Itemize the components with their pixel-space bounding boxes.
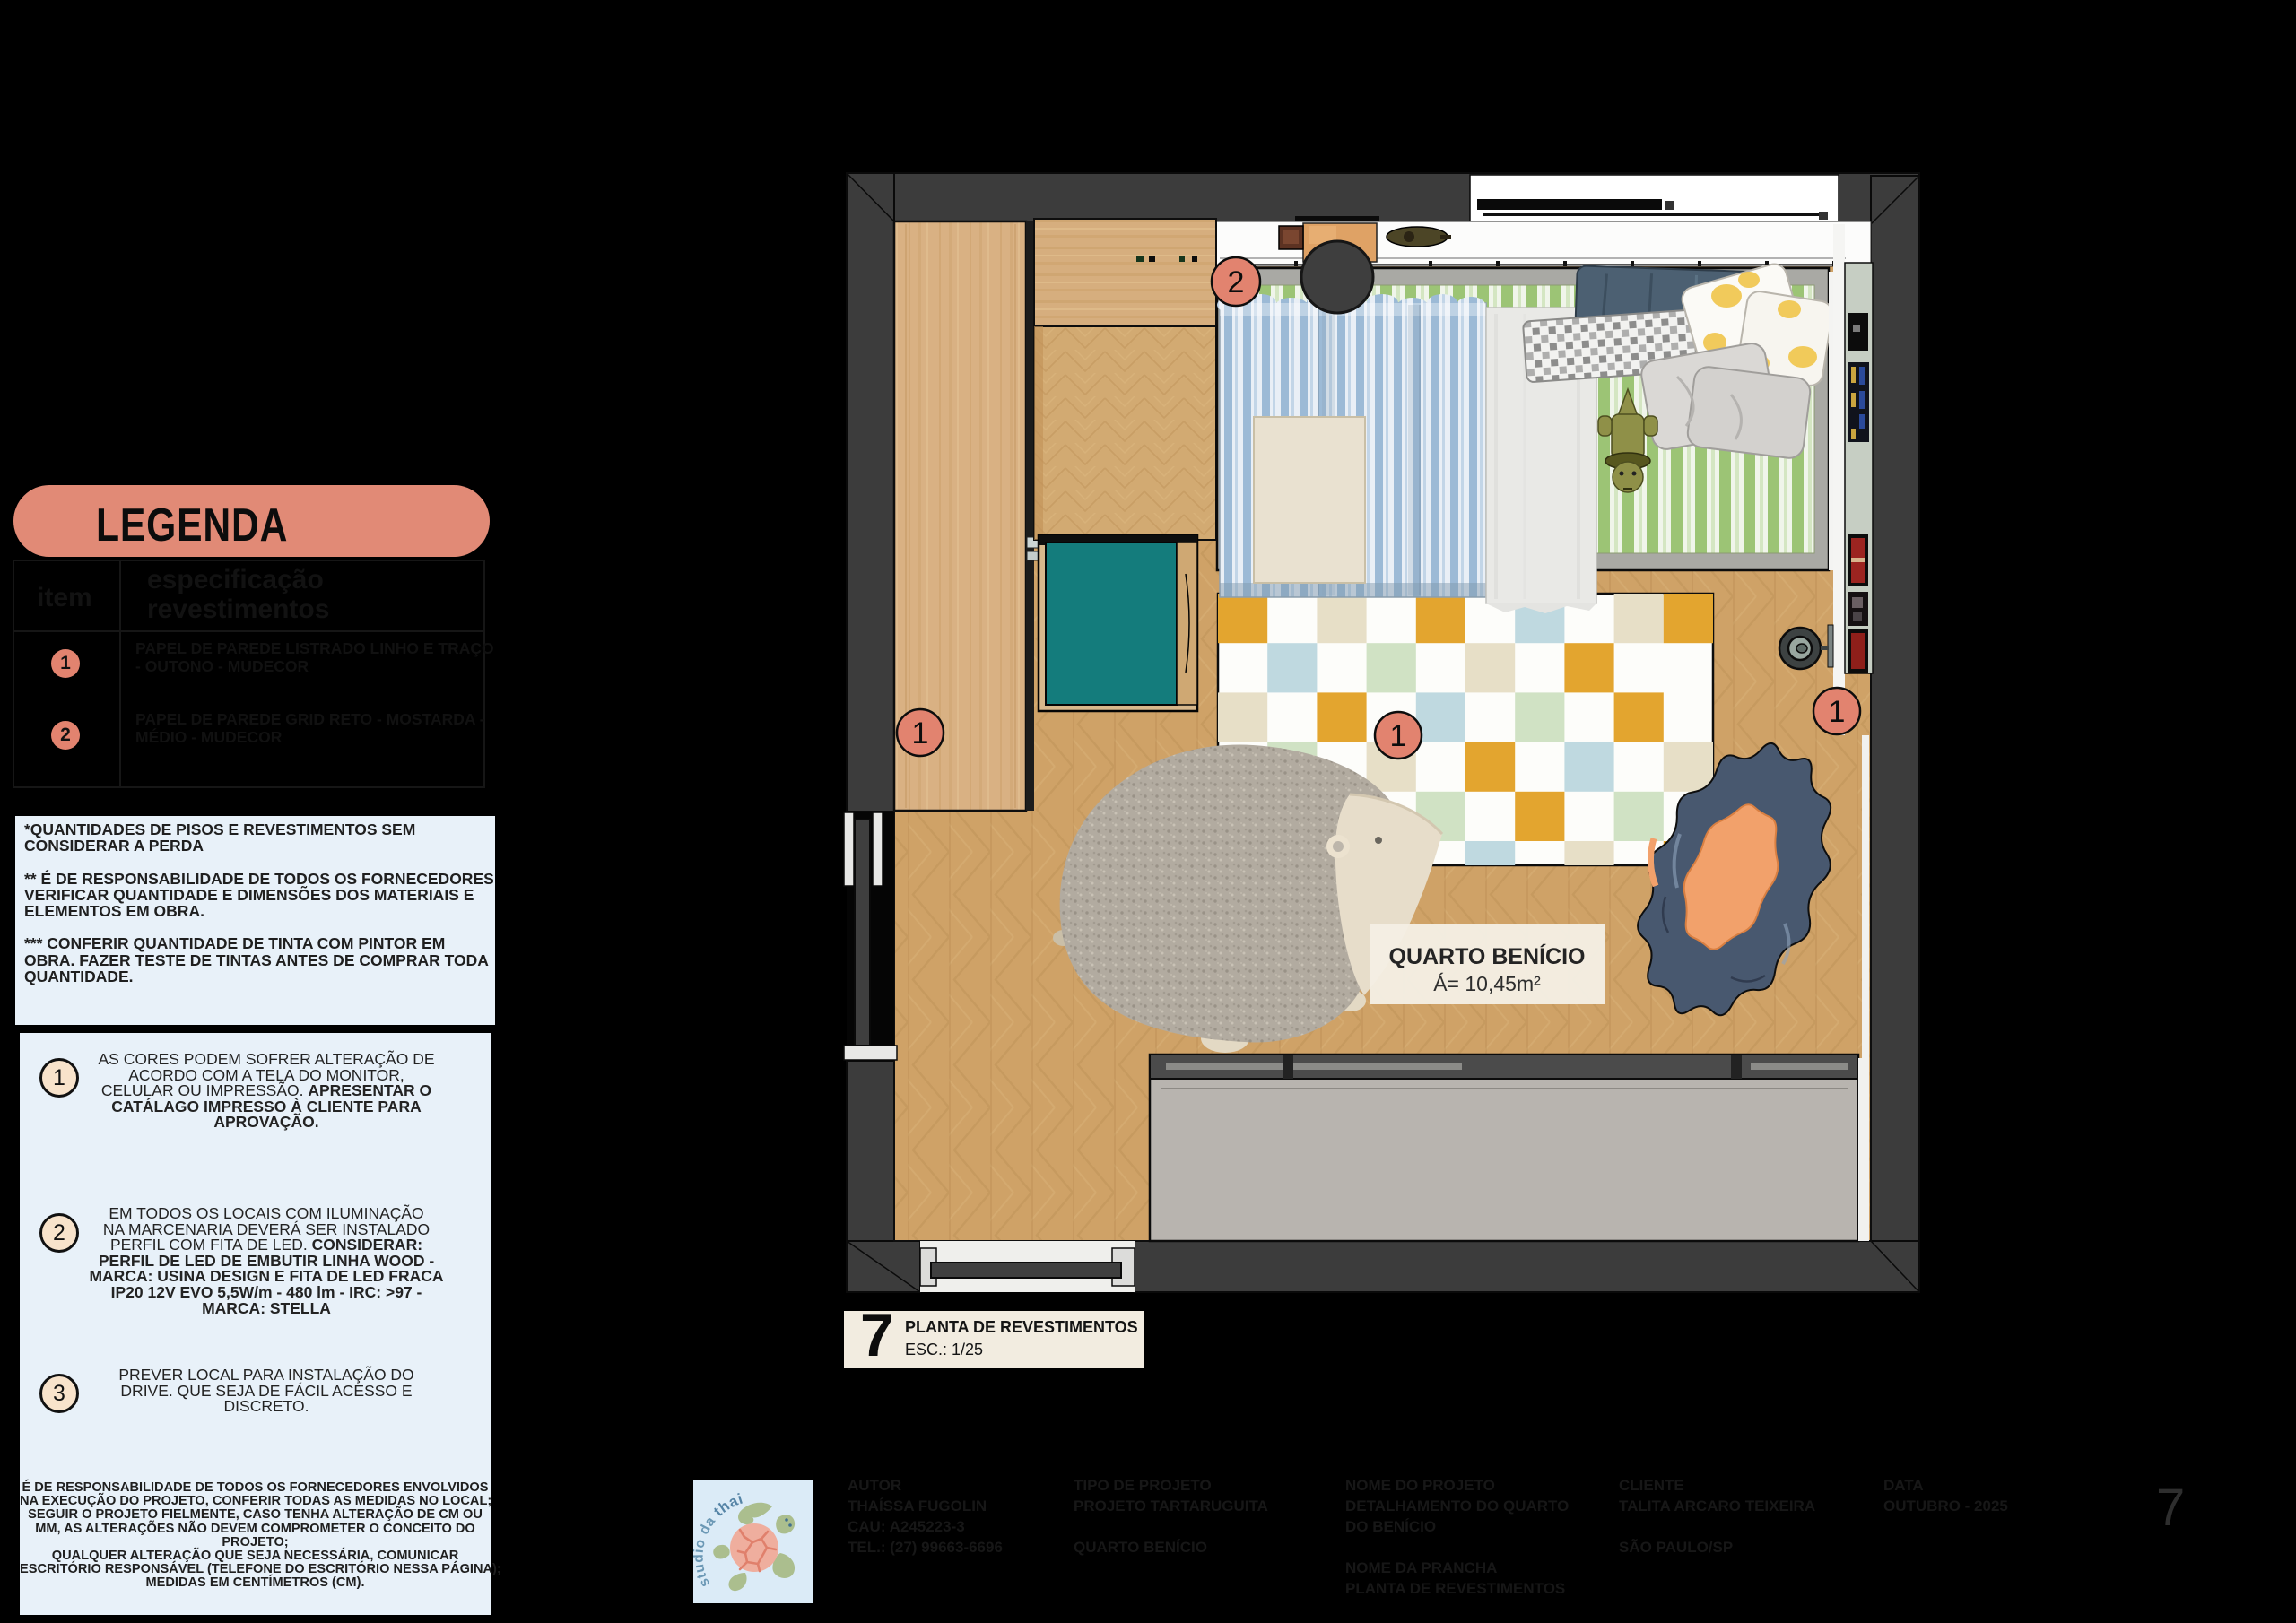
svg-text:Á= 10,45m²: Á= 10,45m² bbox=[1433, 972, 1541, 995]
svg-text:1: 1 bbox=[1829, 695, 1846, 729]
svg-text:1: 1 bbox=[912, 716, 929, 751]
svg-text:1: 1 bbox=[1390, 719, 1407, 753]
svg-text:2: 2 bbox=[1228, 265, 1245, 299]
svg-text:QUARTO BENÍCIO: QUARTO BENÍCIO bbox=[1389, 943, 1586, 969]
